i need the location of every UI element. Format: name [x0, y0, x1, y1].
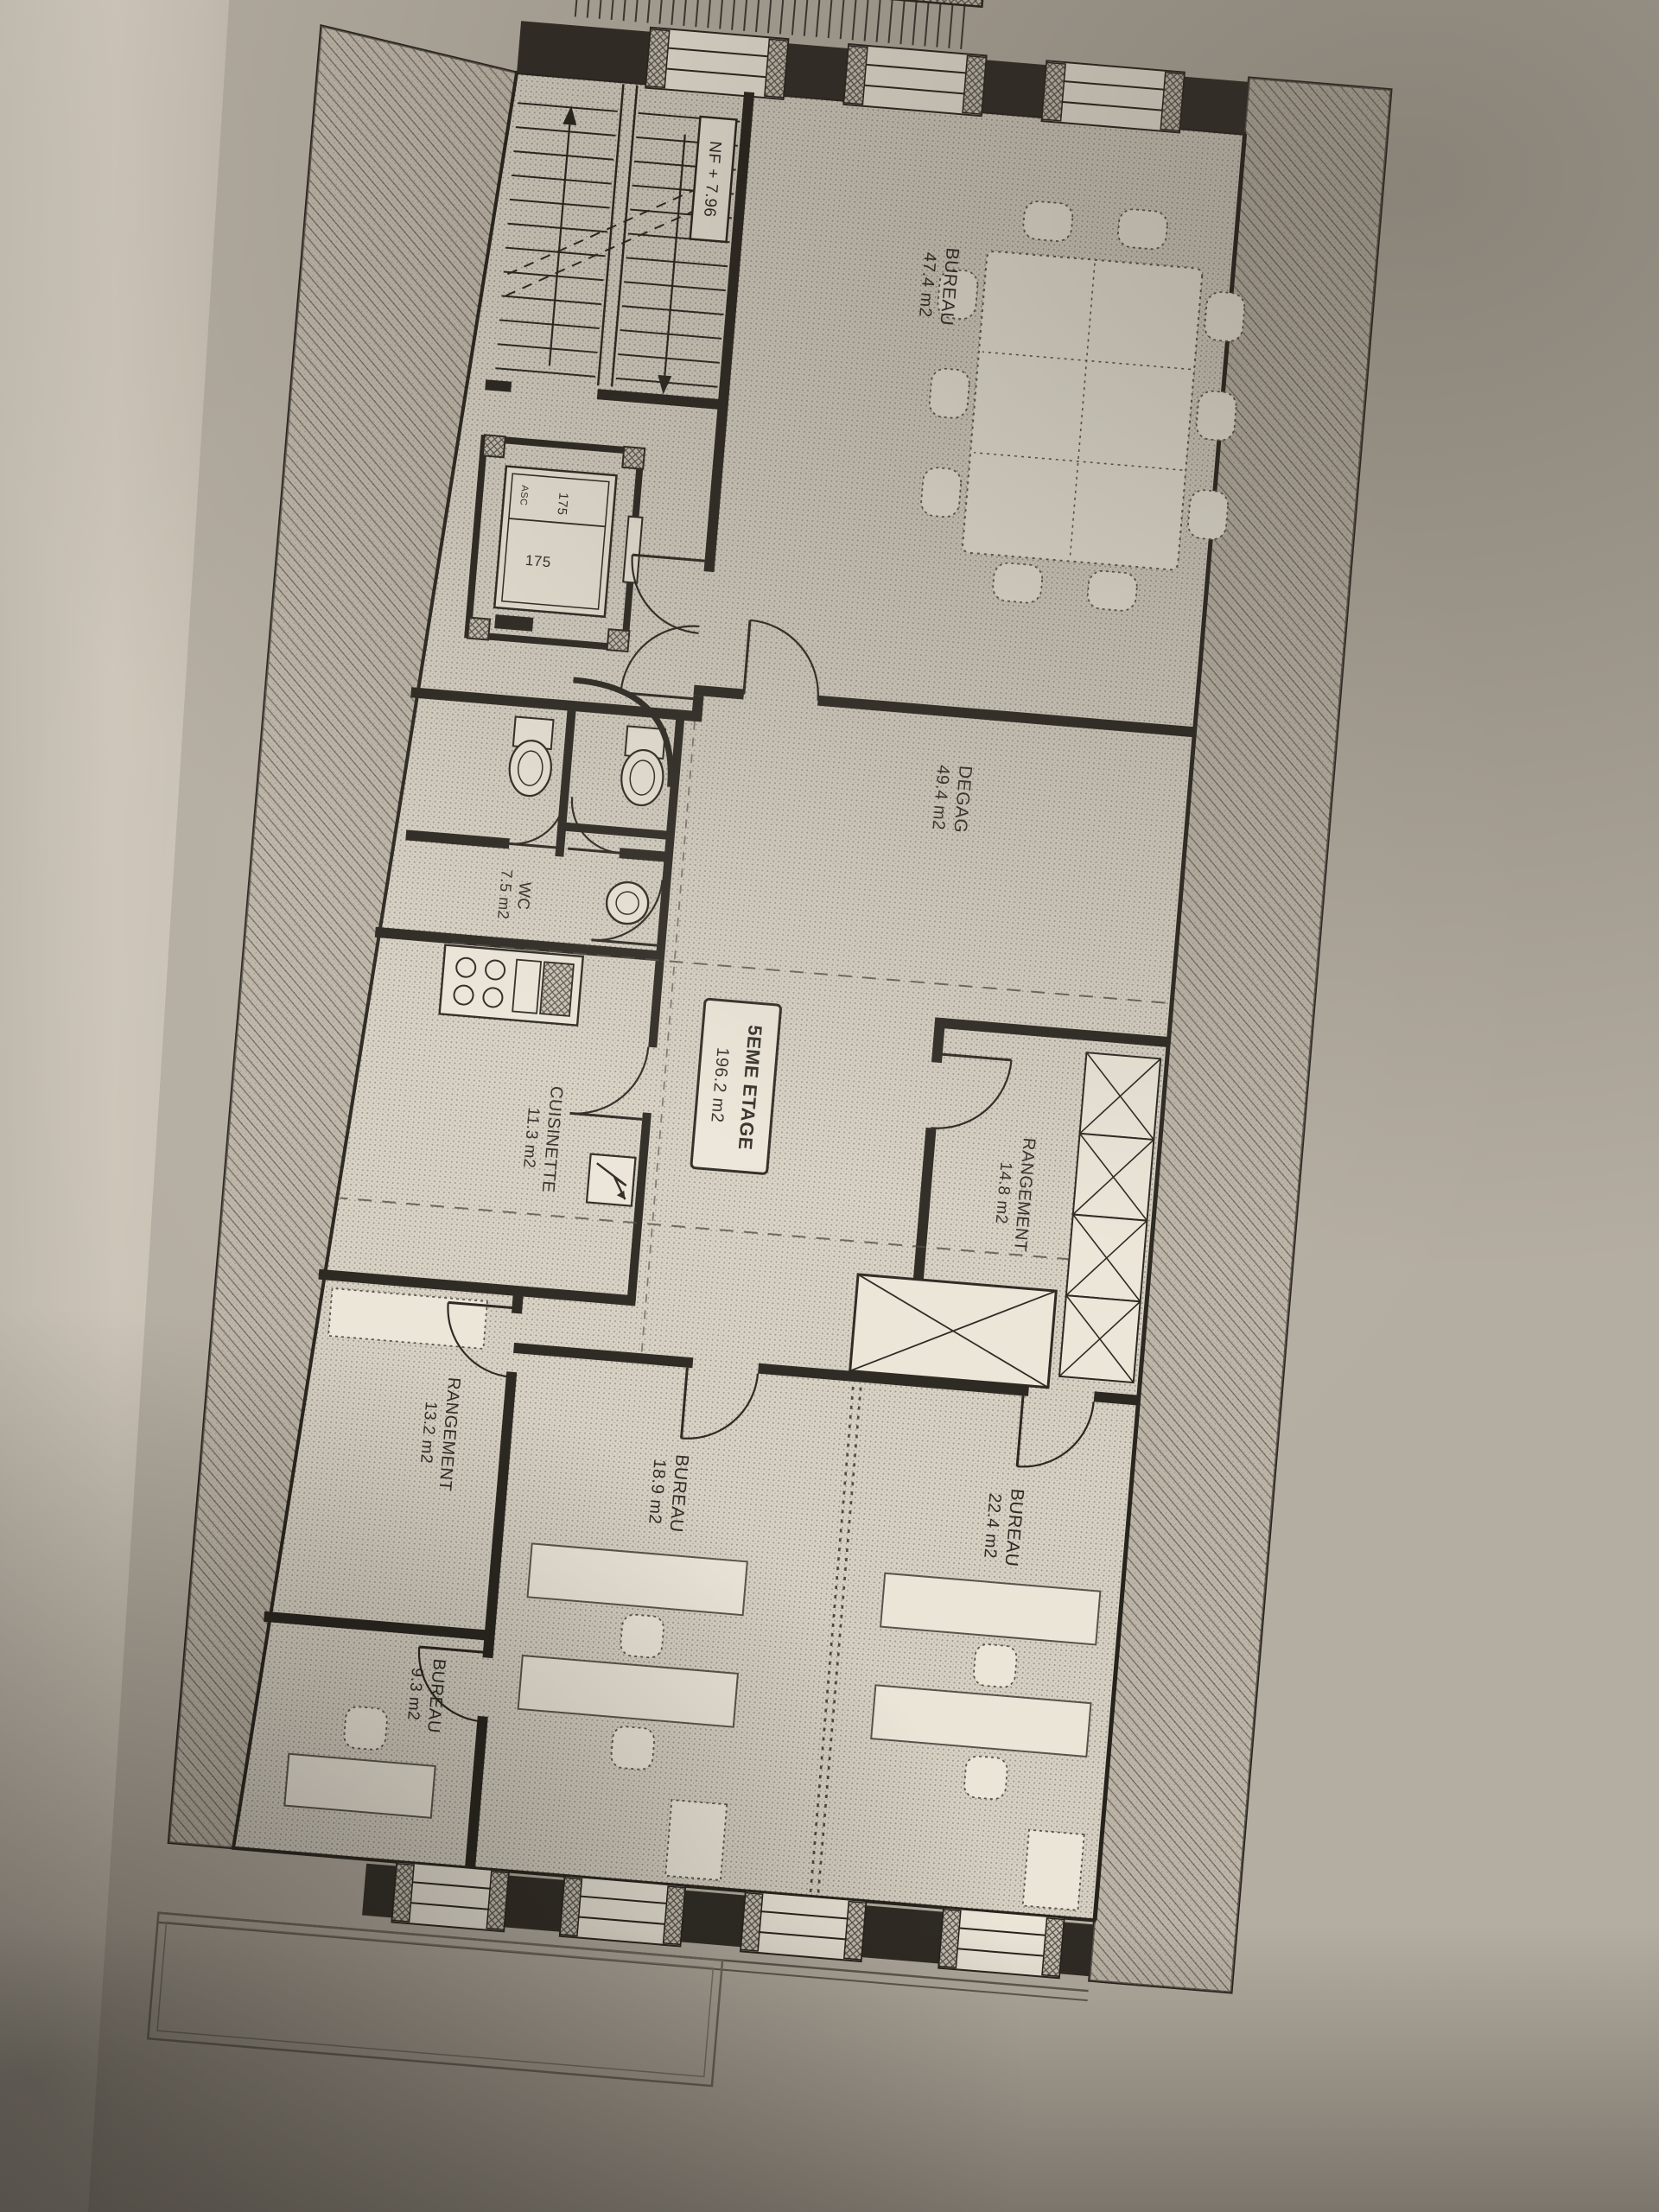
duct-x	[850, 1274, 1057, 1388]
electrical-panel-icon	[587, 1154, 636, 1206]
elevator-dim-b: 175	[554, 492, 570, 516]
floor-tag-box: 5EME ETAGE 196.2 m2	[691, 999, 781, 1174]
elevator-dim-a: 175	[524, 552, 551, 570]
neighbor-core-strip	[569, 0, 986, 7]
room-label-wc-name: WC	[513, 881, 534, 911]
floorplan-svg: NF + 7.96 175 175 ASC	[134, 0, 1408, 2139]
photo-background: NF + 7.96 175 175 ASC	[0, 0, 1659, 2212]
floor-plan-sheet: NF + 7.96 175 175 ASC	[134, 0, 1408, 2139]
elevator-cabin-tag: ASC	[518, 485, 530, 506]
